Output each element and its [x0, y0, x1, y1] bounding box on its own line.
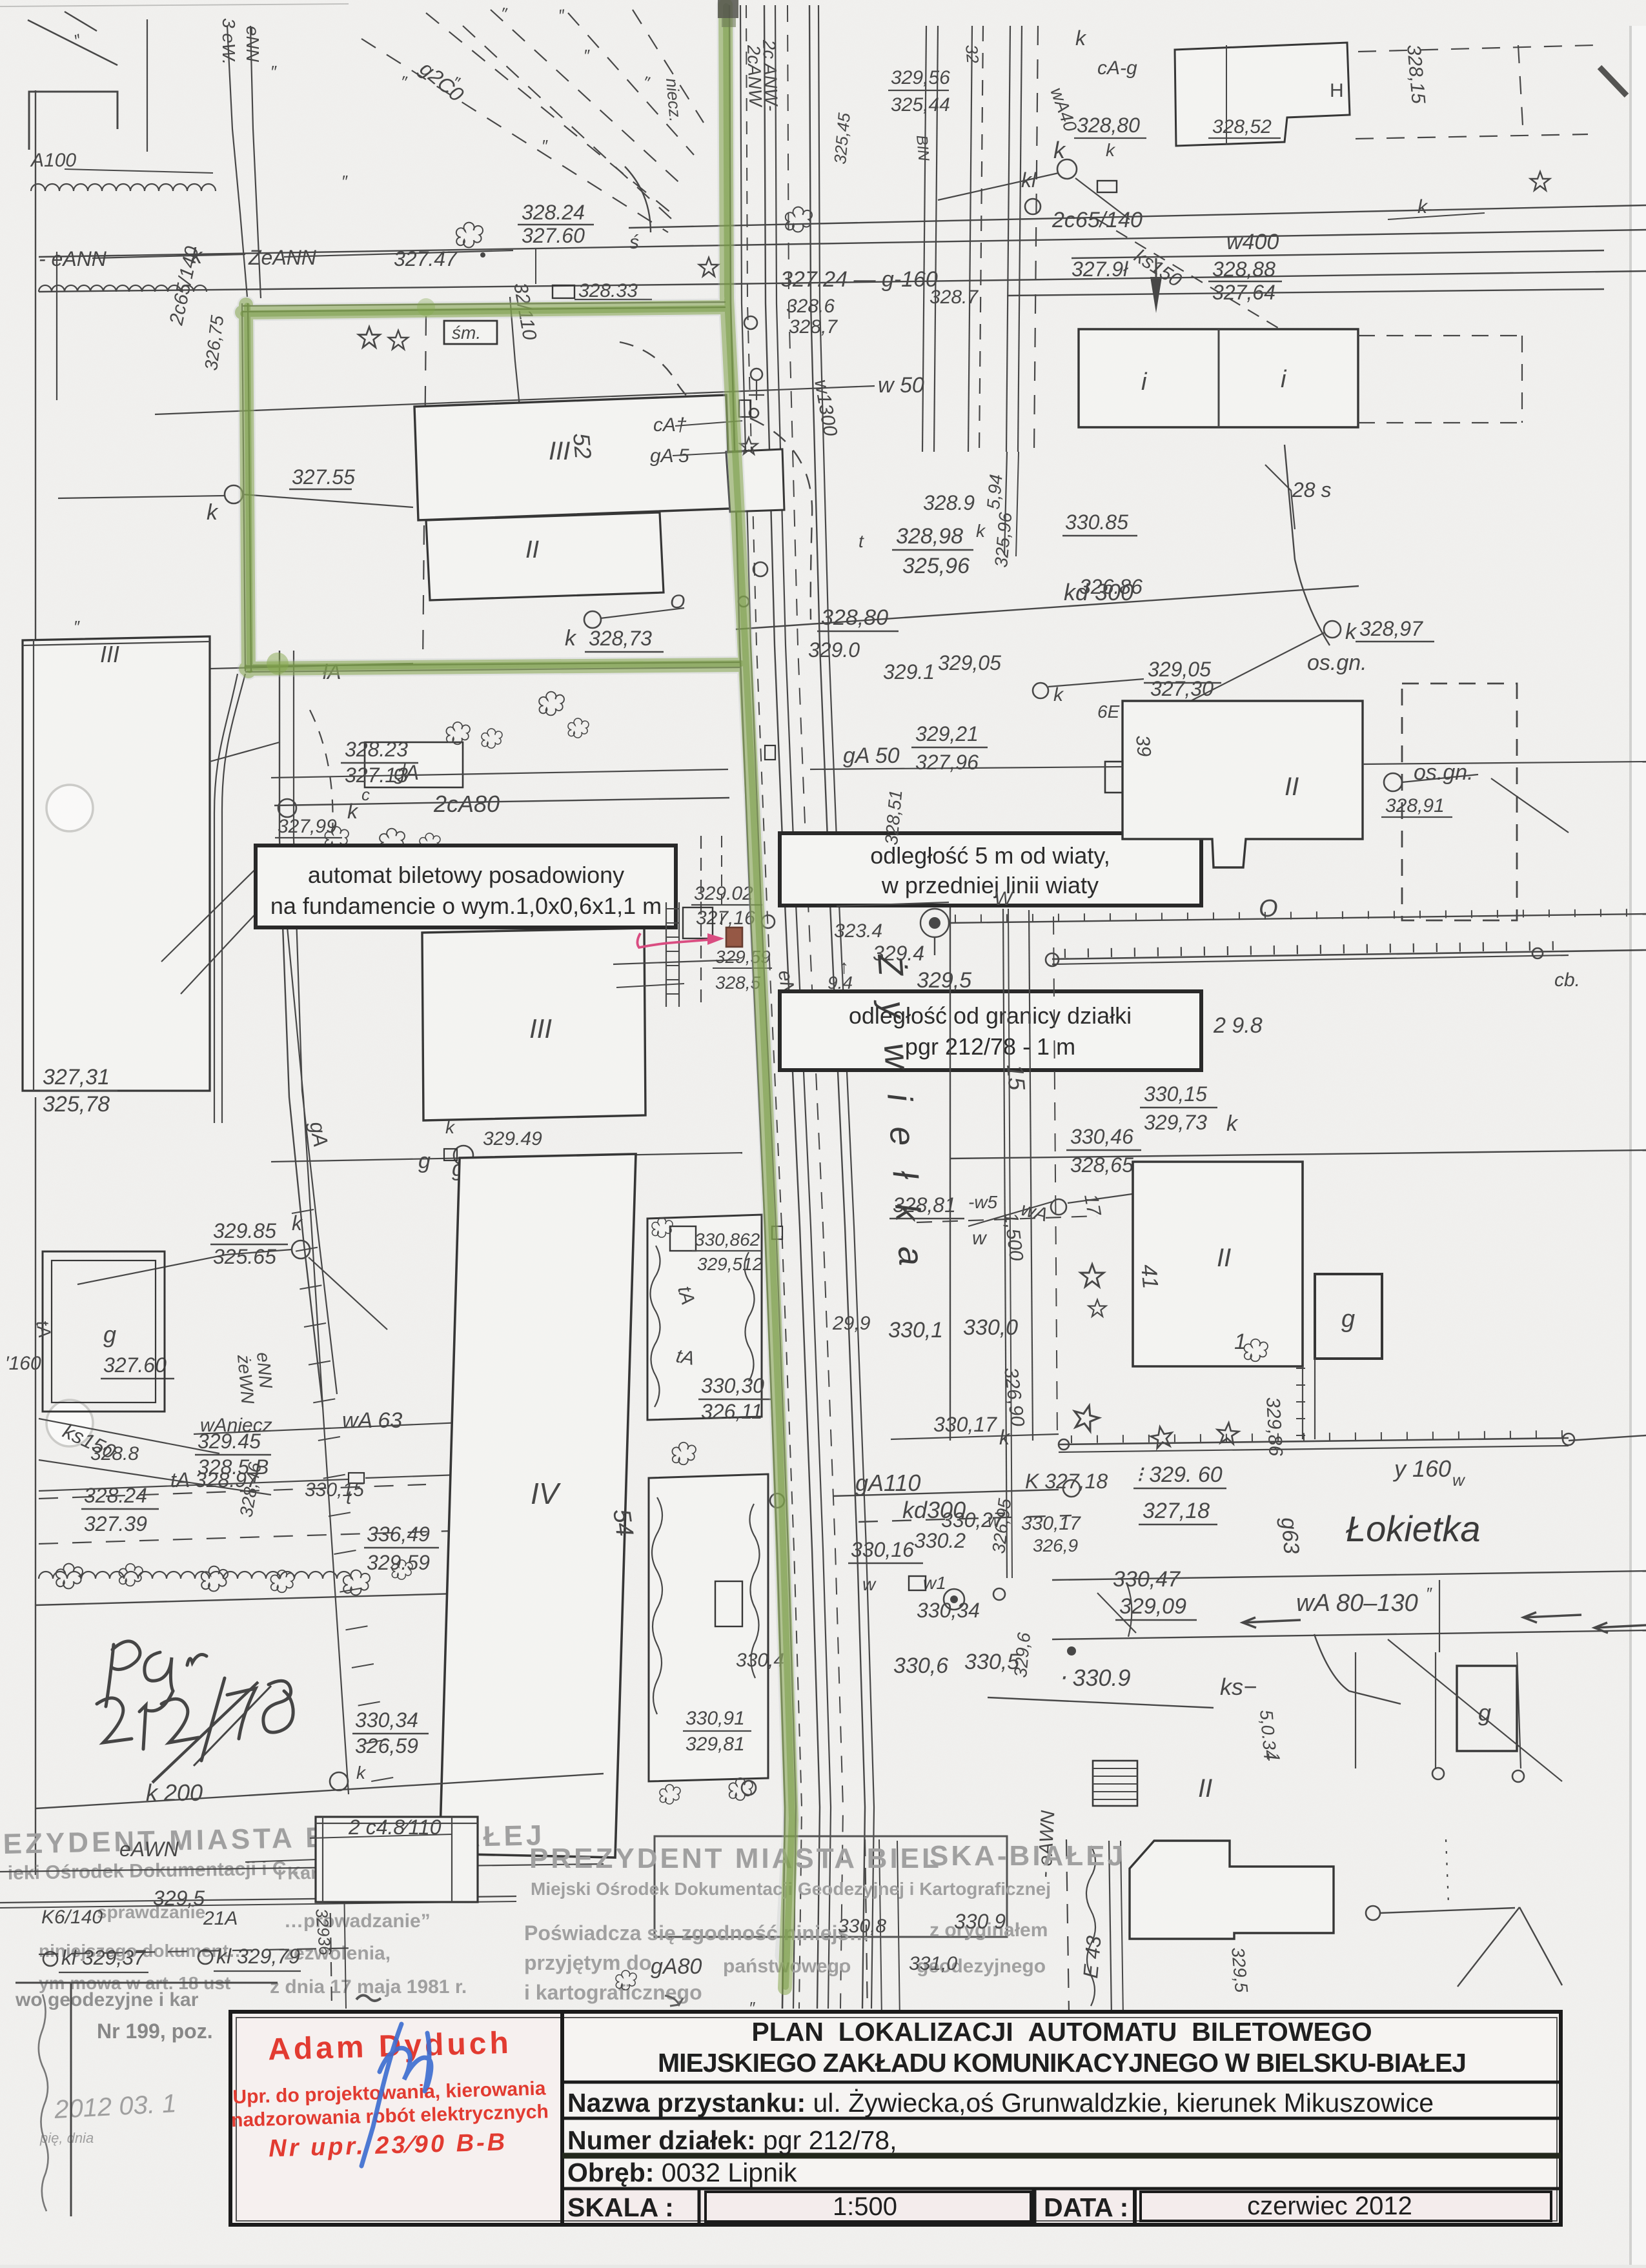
svg-text:328.23: 328.23: [345, 738, 408, 761]
svg-text:″: ″: [542, 136, 548, 156]
svg-text:328.24: 328.24: [522, 201, 585, 224]
svg-text:325,78: 325,78: [43, 1092, 110, 1117]
svg-text:329.0: 329.0: [808, 638, 860, 662]
svg-text:wA 80–130: wA 80–130: [1296, 1590, 1418, 1617]
svg-text:325.65: 325.65: [213, 1245, 276, 1268]
svg-text:328,88: 328,88: [1212, 258, 1275, 281]
svg-text:329,5: 329,5: [917, 968, 971, 993]
svg-text:k: k: [445, 1117, 456, 1137]
svg-text:329.1: 329.1: [883, 660, 935, 683]
svg-text:15: 15: [1002, 1063, 1030, 1091]
svg-text:gA80: gA80: [651, 1954, 702, 1979]
svg-text:k: k: [1075, 26, 1087, 50]
svg-text:330.2: 330.2: [914, 1529, 966, 1552]
svg-text:327,16: 327,16: [696, 907, 755, 929]
svg-text:IV: IV: [531, 1477, 562, 1510]
svg-text:39: 39: [1132, 734, 1155, 758]
svg-text:Obręb: 0032 Lipnik: Obręb: 0032 Lipnik: [567, 2158, 797, 2187]
svg-text:32936: 32936: [312, 1908, 335, 1956]
svg-text:326,9: 326,9: [1033, 1535, 1078, 1555]
svg-text:329,05: 329,05: [938, 651, 1001, 674]
svg-text:327.47: 327.47: [394, 247, 458, 270]
svg-text:gA: gA: [394, 761, 419, 784]
svg-text:328,65: 328,65: [1070, 1153, 1133, 1177]
svg-text:″: ″: [74, 617, 80, 636]
svg-text:326,59: 326,59: [355, 1734, 418, 1757]
svg-text:″: ″: [342, 172, 348, 191]
svg-text:326.86: 326.86: [1079, 575, 1143, 598]
svg-text:niecz.: niecz.: [662, 77, 686, 123]
svg-text:329.45: 329.45: [198, 1430, 261, 1453]
svg-text:327.60: 327.60: [522, 224, 585, 247]
svg-text:330 9: 330 9: [954, 1910, 1006, 1933]
svg-text:329,86: 329,86: [1262, 1397, 1286, 1457]
svg-text:Nr 199, poz.: Nr 199, poz.: [97, 2020, 213, 2043]
svg-text:336,49: 336,49: [367, 1523, 430, 1546]
svg-text:k: k: [1053, 684, 1064, 705]
svg-text:327.9ł: 327.9ł: [1072, 258, 1128, 281]
svg-text:327,18: 327,18: [1143, 1499, 1210, 1523]
svg-text:III: III: [549, 437, 570, 465]
svg-text:327,96: 327,96: [915, 751, 979, 774]
svg-text:330,30: 330,30: [701, 1374, 764, 1397]
svg-text:w 50: w 50: [878, 373, 924, 398]
svg-text:330,17: 330,17: [933, 1413, 997, 1436]
svg-text:śm.: śm.: [452, 323, 481, 343]
svg-text:327,99: 327,99: [278, 816, 337, 837]
svg-text:↑: ↑: [839, 957, 849, 978]
svg-text:k: k: [356, 1763, 367, 1783]
svg-text:c: c: [361, 785, 370, 804]
svg-text:330,91: 330,91: [686, 1708, 745, 1729]
svg-text:pgr 212/78 - 1 m: pgr 212/78 - 1 m: [905, 1033, 1075, 1060]
svg-text:w: w: [1452, 1470, 1466, 1490]
svg-text:Łokietka: Łokietka: [1346, 1508, 1481, 1549]
svg-text:III: III: [100, 641, 119, 667]
svg-text:327.60: 327.60: [103, 1353, 167, 1377]
svg-text:g: g: [1341, 1306, 1355, 1333]
svg-text:327,31: 327,31: [43, 1065, 110, 1089]
svg-text:328.7: 328.7: [930, 287, 979, 308]
svg-text:III: III: [529, 1013, 552, 1044]
svg-text:330,862: 330,862: [695, 1230, 760, 1250]
svg-text:tA: tA: [32, 1319, 55, 1339]
svg-text:329,56: 329,56: [891, 67, 950, 88]
svg-text:MIEJSKIEGO ZAKŁADU KOMUNIKACYJ: MIEJSKIEGO ZAKŁADU KOMUNIKACYJNEGO W BIE…: [658, 2048, 1466, 2078]
svg-text:w przedniej linii wiaty: w przedniej linii wiaty: [881, 872, 1099, 898]
svg-text:k: k: [1226, 1111, 1239, 1136]
svg-text:″: ″: [1427, 1584, 1432, 1603]
svg-text:328,80: 328,80: [1077, 114, 1140, 137]
svg-text:PLAN LOKALIZACJI AUTOMATU B: PLAN LOKALIZACJI AUTOMATU BILETOWEGO: [751, 2017, 1372, 2047]
svg-text:2cA80: 2cA80: [433, 791, 500, 817]
svg-text:odległość 5 m od wiaty,: odległość 5 m od wiaty,: [870, 842, 1110, 869]
svg-text:326,11: 326,11: [701, 1400, 763, 1423]
svg-text:g: g: [418, 1149, 431, 1173]
svg-text:330,34: 330,34: [917, 1599, 980, 1622]
svg-text:329.49: 329.49: [483, 1128, 542, 1149]
svg-text:″: ″: [584, 46, 590, 65]
svg-text:328,81: 328,81: [893, 1193, 956, 1217]
svg-text:II: II: [1285, 773, 1299, 801]
svg-text:- eANN: - eANN: [39, 247, 107, 270]
svg-text:329.02: 329.02: [694, 883, 753, 904]
svg-text:cb.: cb.: [1554, 969, 1580, 991]
svg-text:329,21: 329,21: [915, 722, 979, 745]
svg-text:O: O: [670, 591, 685, 613]
svg-text:wo geodezyjne i kar: wo geodezyjne i kar: [15, 1989, 199, 2010]
svg-text:327.24 — g-160: 327.24 — g-160: [780, 267, 938, 292]
svg-text:328,80: 328,80: [821, 605, 888, 630]
svg-text:330,15: 330,15: [1144, 1082, 1207, 1106]
svg-text:330,0: 330,0: [963, 1315, 1018, 1340]
svg-text:Poświadcza się zgodność niniej: Poświadcza się zgodność niniejs…: [524, 1921, 869, 1945]
svg-text:331,0: 331,0: [909, 1953, 957, 1974]
svg-text:1: 1: [1264, 1752, 1284, 1763]
svg-text:41: 41: [1136, 1263, 1163, 1290]
svg-text:automat biletowy posadowiony: automat biletowy posadowiony: [308, 862, 624, 888]
svg-text:ś: ś: [629, 232, 639, 253]
svg-text:DATA :: DATA :: [1044, 2192, 1128, 2222]
svg-text:330,8: 330,8: [838, 1916, 886, 1937]
svg-text:…prowadzanie”: …prowadzanie”: [284, 1910, 431, 1932]
svg-text:g63: g63: [1276, 1516, 1304, 1555]
svg-text:SKALA :: SKALA :: [567, 2192, 674, 2222]
svg-text:gA110: gA110: [855, 1470, 920, 1496]
svg-text:os.gn.: os.gn.: [1307, 651, 1367, 675]
svg-text:k: k: [976, 521, 986, 541]
svg-text:327.55: 327.55: [292, 465, 355, 489]
svg-text:5,94: 5,94: [983, 474, 1006, 511]
svg-text:BIN: BIN: [913, 134, 932, 162]
svg-text:329,5: 329,5: [153, 1887, 205, 1910]
svg-text:328.33: 328.33: [578, 280, 638, 301]
svg-text:Numer działek: pgr 212/78,: Numer działek: pgr 212/78,: [567, 2125, 897, 2155]
svg-text:PREZYDENT MIASTA BIEL: PREZYDENT MIASTA BIEL: [529, 1843, 942, 1874]
svg-text:SKA-BIAŁEJ: SKA-BIAŁEJ: [930, 1840, 1126, 1872]
svg-text:330,15: 330,15: [305, 1479, 364, 1501]
svg-text:tA: tA: [675, 1345, 696, 1369]
svg-text:K6/140: K6/140: [41, 1907, 103, 1928]
svg-text:w: w: [862, 1574, 877, 1594]
svg-text:k 200: k 200: [146, 1779, 203, 1806]
svg-text:323.4: 323.4: [834, 920, 882, 942]
svg-text:328.9: 328.9: [923, 491, 975, 514]
svg-text:k: k: [1345, 620, 1357, 644]
svg-text:28 s: 28 s: [1292, 478, 1331, 501]
svg-text:-w5: -w5: [968, 1192, 998, 1212]
svg-text:328,52: 328,52: [1212, 116, 1272, 137]
svg-text:329,6: 329,6: [1010, 1632, 1034, 1679]
svg-text:330,16: 330,16: [851, 1538, 914, 1561]
svg-text:2c ANW-: 2c ANW-: [759, 39, 782, 111]
svg-text:z dnia 17 maja 1981 r.: z dnia 17 maja 1981 r.: [270, 1976, 467, 1998]
svg-text:32: 32: [962, 44, 982, 65]
svg-text:329,09: 329,09: [1119, 1594, 1186, 1619]
svg-text:t: t: [859, 531, 864, 551]
svg-text:k: k: [347, 800, 359, 823]
svg-text:A100: A100: [30, 150, 76, 171]
svg-text:przyjętym do: przyjętym do: [524, 1951, 651, 1974]
svg-text:gA 5: gA 5: [650, 445, 689, 467]
svg-text:y 160: y 160: [1392, 1455, 1451, 1482]
svg-text:⋅ 330.9: ⋅ 330.9: [1059, 1665, 1131, 1691]
svg-text:II: II: [1217, 1244, 1231, 1272]
svg-text:328,98: 328,98: [896, 524, 963, 549]
svg-text:330,4: 330,4: [736, 1650, 784, 1671]
svg-text:K 327,18: K 327,18: [1025, 1470, 1108, 1493]
svg-text:329,5: 329,5: [1228, 1947, 1252, 1994]
svg-text:kl 329,79: kl 329,79: [216, 1945, 300, 1968]
svg-text:329.85: 329.85: [213, 1219, 276, 1242]
svg-text:Nazwa przystanku: ul. Żywiecka: Nazwa przystanku: ul. Żywiecka,oś Grunwa…: [567, 2088, 1434, 2118]
svg-text:k: k: [1417, 196, 1428, 218]
svg-text:eNN: eNN: [253, 1352, 276, 1390]
svg-text:329,73: 329,73: [1144, 1111, 1207, 1134]
svg-text:330,6: 330,6: [893, 1654, 948, 1678]
svg-text:k: k: [999, 1426, 1011, 1449]
svg-text:52: 52: [568, 432, 596, 460]
svg-text:330,1: 330,1: [888, 1318, 943, 1342]
svg-text:29,9: 29,9: [832, 1313, 871, 1334]
svg-text:330,34: 330,34: [355, 1708, 418, 1732]
svg-text:328.8: 328.8: [90, 1443, 139, 1464]
svg-text:⁝ 329. 60: ⁝ 329. 60: [1136, 1463, 1223, 1487]
svg-text:czerwiec 2012: czerwiec 2012: [1247, 2192, 1412, 2220]
svg-text:k: k: [1106, 140, 1116, 160]
svg-text:2 9.8: 2 9.8: [1213, 1013, 1263, 1038]
svg-text:″: ″: [271, 62, 277, 81]
svg-text:na fundamencie o wym.1,0x0,6x1: na fundamencie o wym.1,0x0,6x1,1 m: [270, 893, 662, 919]
svg-text:2c65/140: 2c65/140: [1052, 208, 1143, 232]
svg-text:w: w: [972, 1228, 988, 1249]
svg-text:wA 63: wA 63: [342, 1408, 402, 1433]
svg-text:54: 54: [607, 1507, 638, 1538]
svg-text:cA-g: cA-g: [1097, 57, 1137, 79]
svg-text:H: H: [1330, 80, 1344, 101]
svg-text:330,46: 330,46: [1070, 1125, 1133, 1148]
svg-text:eAWN: eAWN: [119, 1838, 179, 1861]
svg-text:329,81: 329,81: [686, 1734, 745, 1755]
svg-text:327,30: 327,30: [1150, 677, 1214, 700]
svg-text:gA 50: gA 50: [843, 744, 900, 768]
svg-text:ks−: ks−: [1220, 1674, 1257, 1700]
svg-text:g: g: [103, 1321, 116, 1348]
svg-text:328,7: 328,7: [789, 316, 838, 338]
svg-text:eNN: eNN: [243, 26, 263, 63]
svg-text:330,17: 330,17: [1021, 1513, 1081, 1534]
svg-text:gA: gA: [305, 1120, 332, 1149]
svg-text:w400: w400: [1226, 230, 1279, 254]
svg-text:k: k: [207, 500, 219, 525]
svg-text:II: II: [1198, 1774, 1212, 1803]
svg-text:21A: 21A: [203, 1908, 238, 1929]
svg-text:328,91: 328,91: [1385, 795, 1445, 816]
svg-text:w1: w1: [923, 1573, 946, 1593]
svg-text:k: k: [565, 626, 577, 651]
svg-text:1:500: 1:500: [833, 2192, 897, 2221]
svg-text:330,47: 330,47: [1113, 1567, 1181, 1592]
svg-text:329,512: 329,512: [697, 1254, 763, 1274]
svg-text:327.39: 327.39: [84, 1512, 147, 1535]
svg-text:pię, dnia: pię, dnia: [39, 2130, 94, 2146]
svg-text:W: W: [994, 888, 1014, 909]
svg-text:328,73: 328,73: [589, 627, 652, 650]
svg-text:kl 329,37: kl 329,37: [61, 1946, 146, 1969]
svg-text:328,97: 328,97: [1359, 617, 1423, 640]
svg-text:330.85: 330.85: [1065, 511, 1128, 534]
svg-text:6E: 6E: [1097, 702, 1120, 722]
svg-text:k: k: [292, 1211, 303, 1235]
svg-text:II: II: [525, 536, 540, 563]
svg-text:325,44: 325,44: [891, 94, 950, 116]
svg-text:325,96: 325,96: [902, 554, 970, 578]
svg-text:′160: ′160: [5, 1353, 41, 1374]
